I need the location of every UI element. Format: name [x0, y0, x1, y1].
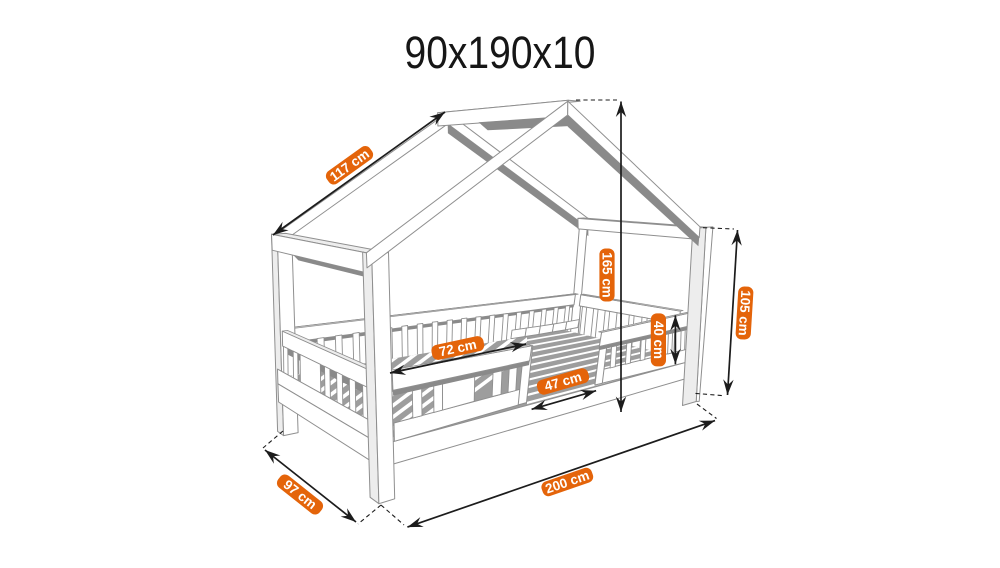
svg-text:90x190x10: 90x190x10 — [405, 27, 596, 78]
svg-text:165 cm: 165 cm — [600, 252, 615, 298]
svg-text:40 cm: 40 cm — [651, 321, 666, 359]
svg-text:105 cm: 105 cm — [736, 290, 754, 336]
